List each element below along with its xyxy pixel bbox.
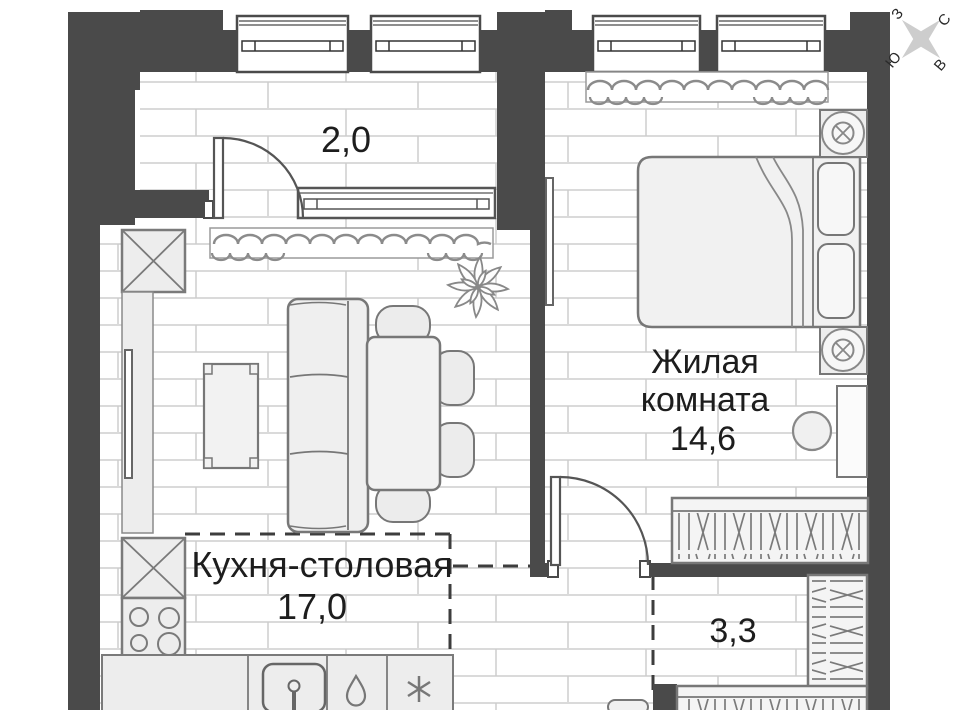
wardrobe-hangers-icon — [676, 513, 864, 559]
kitchen-counter — [102, 655, 453, 710]
wall-living-top-left — [572, 30, 593, 72]
living-room-area-label: 14,6 — [670, 420, 736, 458]
living-room-name-line2: комната — [641, 381, 770, 419]
jamb-balcony-door — [204, 201, 213, 218]
window-balcony-1 — [237, 16, 348, 72]
wall-center-notch — [545, 10, 572, 72]
wall-interior-kitchen-living — [530, 230, 545, 575]
wall-balcony-top-left — [140, 30, 237, 72]
desk — [837, 386, 867, 477]
pillow — [818, 163, 854, 235]
pouf — [608, 700, 648, 710]
wall-center-pier — [497, 12, 545, 230]
stool — [793, 412, 831, 450]
wall-balcony-parapet-step — [140, 10, 223, 30]
wall-living-top-mullion — [700, 30, 717, 72]
floor-plan-page: 2,0 Жилая комната 14,6 Кухня-столовая 17… — [0, 0, 960, 710]
kitchen-name-label: Кухня-столовая — [191, 544, 452, 585]
faucet-icon — [289, 681, 300, 692]
curtain-kitchen — [210, 228, 493, 260]
vent-shaft-bottom — [122, 538, 185, 598]
living-room-name-line1: Жилая — [651, 343, 759, 381]
dining-table — [367, 337, 440, 490]
vent-shaft-top — [122, 230, 185, 292]
compass-rose: З С Ю В — [882, 1, 959, 77]
wall-balcony-bottom — [100, 190, 209, 218]
nightstand-top — [820, 110, 867, 157]
compass-west-label: З — [888, 5, 907, 23]
wardrobe-living — [672, 498, 868, 563]
wall-top-left-corner — [68, 12, 140, 90]
tv-living — [546, 178, 553, 305]
wall-balcony-top-mullion — [348, 30, 371, 72]
bed — [638, 157, 860, 327]
kitchen-area-label: 17,0 — [277, 586, 347, 627]
window-balcony-2 — [371, 16, 480, 72]
pillow — [818, 244, 854, 318]
floor-plan-drawing: 2,0 Жилая комната 14,6 Кухня-столовая 17… — [0, 0, 960, 710]
hall-area-label: 3,3 — [709, 612, 756, 650]
kitchen-sink — [263, 664, 325, 710]
wardrobe-hangers-icon — [812, 579, 863, 684]
floor-living-door-opening — [548, 563, 650, 577]
wall-left-outer — [68, 225, 100, 710]
compass-east-label: В — [931, 56, 950, 75]
compass-north-label: С — [935, 10, 955, 29]
coffee-table — [204, 364, 258, 468]
stove — [122, 598, 185, 660]
curtain-living — [586, 72, 828, 104]
floor-balcony-door-opening — [213, 190, 298, 218]
sofa — [288, 299, 368, 532]
wardrobe-hall-bottom — [677, 686, 867, 710]
wardrobe-hall-right — [808, 575, 867, 688]
floor-balcony — [140, 72, 497, 190]
tv-kitchen — [125, 350, 132, 478]
balcony-area-label: 2,0 — [321, 119, 371, 160]
window-living-1 — [593, 16, 700, 72]
wardrobe-hangers-icon — [681, 699, 863, 710]
wall-hall-bottom-stub — [653, 684, 677, 710]
wall-living-bottom-stub — [530, 563, 548, 577]
wall-right-outer — [867, 72, 890, 710]
nightstand-bottom — [820, 327, 867, 374]
window-living-2 — [717, 16, 825, 72]
window-kitchen-sill — [298, 188, 495, 218]
